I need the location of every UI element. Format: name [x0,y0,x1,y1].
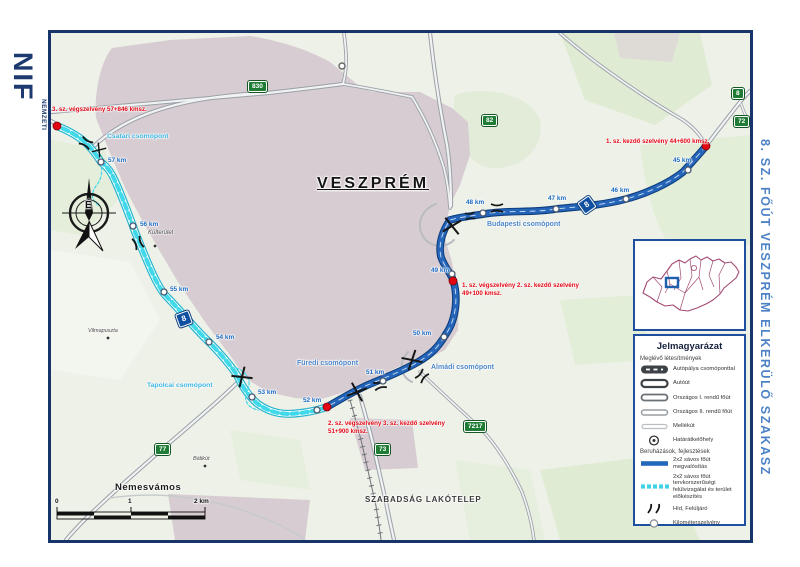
junction-label-almadi: Almádi csomópont [431,364,494,371]
junction-label-budapesti: Budapesti csomópont [487,221,561,228]
legend-title: Jelmagyarázat [640,341,739,352]
legend-item-planned-2x2: 2x2 sávos főút tervkorszerűségi felülviz… [640,474,739,501]
road-shield-72: 72 [734,116,749,127]
annotation-end2-start3: 2. sz. végszelvény 3. sz. kezdő szelvény… [328,420,445,436]
km-marker-label: 56 km [140,221,158,228]
km-marker-label: 49 km [431,267,449,274]
road-shield-830: 830 [248,81,267,92]
hungary-outline [635,241,744,329]
nif-logo-text: NIF [9,52,36,272]
hungary-inset-map [633,239,746,331]
legend-item-bridge: Híd, Felüljáró [640,503,739,514]
legend-box: Jelmagyarázat Meglévő létesítmények Autó… [633,334,746,526]
road-shield-82: 82 [482,115,497,126]
km-marker-label: 48 km [466,199,484,206]
annotation-end1-start2: 1. sz. végszelvény 2. sz. kezdő szelvény… [462,282,579,298]
junction-label-furedi: Füredi csomópont [297,360,358,367]
expressway-swatch-icon [640,378,670,389]
annotation-end-3: 3. sz. végszelvény 57+846 kmsz. [52,106,147,114]
new-2x2-swatch-icon [640,458,670,469]
place-label-nemesvamos: Nemesvámos [115,482,181,493]
legend-item-side-road: Mellékút [640,421,739,432]
scale-label-0: 0 [55,498,59,505]
legend-item-km-section: Kilométerszelvény [640,518,739,529]
border-crossing-icon [640,435,670,446]
km-section-icon [640,518,670,529]
km-marker-label: 51 km [366,369,384,376]
annotation-start-1: 1. sz. kezdő szelvény 44+600 kmsz. [606,138,709,146]
km-marker-label: 55 km [170,286,188,293]
motorway-swatch-icon [640,364,670,375]
planned-2x2-swatch-icon [640,481,670,492]
compass-north-label: É [85,200,92,211]
legend-section-heading: Meglévő létesítmények [640,356,739,362]
road-shield-73: 73 [375,444,390,455]
legend-item-expressway: Autóút [640,378,739,389]
scale-label-2km: 2 km [194,498,209,505]
km-marker-label: 50 km [413,330,431,337]
km-marker-label: 47 km [548,195,566,202]
scale-label-1: 1 [128,498,132,505]
city-label-veszprem: VESZPRÉM [317,175,429,193]
road-shield-8: 8 [732,88,744,99]
place-label-balikut: Bálikút [193,456,210,462]
place-label-szabadsag: SZABADSÁG LAKÓTELEP [365,495,482,504]
legend-section-heading: Beruházások, fejlesztések [640,449,739,455]
legend-item-main-road-1: Országos I. rendű főút [640,392,739,403]
main-road-1-swatch-icon [640,392,670,403]
km-marker-label: 57 km [108,157,126,164]
km-marker-label: 46 km [611,187,629,194]
legend-item-motorway: Autópálya csomóponttal [640,364,739,375]
junction-circle [339,63,345,69]
bridge-overpass-icon [640,503,670,514]
side-road-swatch-icon [640,421,670,432]
km-marker-label: 54 km [216,334,234,341]
sheet-title: 8. SZ. FŐÚT VESZPRÉM ELKERÜLŐ SZAKASZ [758,139,772,476]
km-marker-label: 52 km [303,397,321,404]
legend-item-main-road-2: Országos II. rendű főút [640,407,739,418]
place-label-vilmapuszta: Vilmapuszta [88,328,118,334]
place-label-kulterulet: Külterület [148,230,173,236]
road-shield-7217: 7217 [464,421,486,432]
main-road-2-swatch-icon [640,407,670,418]
road-shield-77: 77 [155,444,170,455]
junction-label-csatari: Csatári csomópont [107,133,169,140]
km-marker-label: 53 km [258,389,276,396]
map-sheet: { "branding": { "logo": "NIF", "org_line… [0,0,800,567]
legend-item-new-2x2: 2x2 sávos főút megvalósítás [640,457,739,470]
junction-label-tapolcai: Tapolcai csomópont [147,382,213,389]
legend-item-border-crossing: Határátkelőhely [640,435,739,446]
km-marker-label: 45 km [673,157,691,164]
